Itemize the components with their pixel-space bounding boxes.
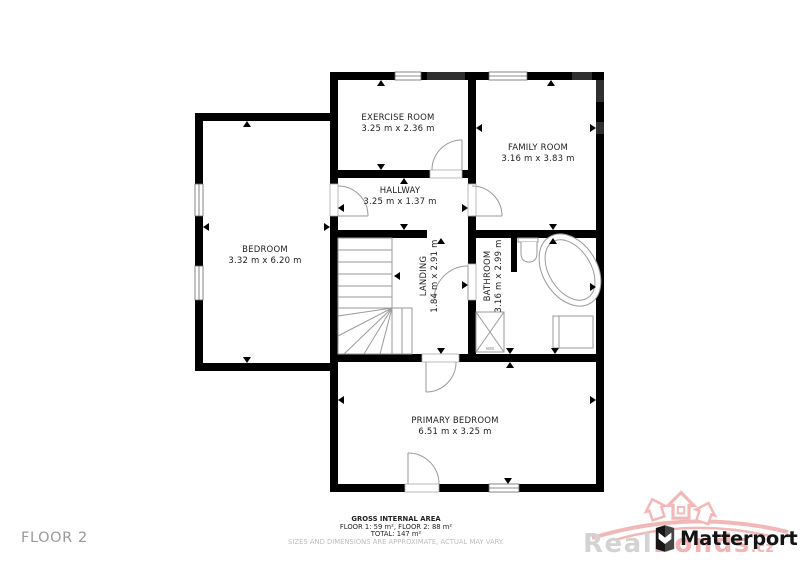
room-dims: 6.51 m x 3.25 m	[411, 427, 498, 438]
room-label-bathroom: BATHROOM 3.16 m x 2.99 m	[483, 239, 505, 312]
room-label-bedroom: BEDROOM 3.32 m x 6.20 m	[228, 245, 301, 267]
watermark-real: Real	[583, 531, 653, 557]
room-name: EXERCISE ROOM	[361, 113, 434, 124]
room-name: BEDROOM	[228, 245, 301, 256]
room-dims: 3.16 m x 2.99 m	[494, 239, 505, 312]
matterport-wordmark: Matterport	[680, 527, 797, 550]
window-top-family	[489, 72, 527, 80]
washer	[553, 316, 593, 348]
room-name: BATHROOM	[483, 239, 494, 312]
window-bedroom-lower	[195, 266, 203, 300]
room-label-landing: LANDING 1.84 m x 2.91 m	[419, 239, 441, 312]
floorplan-svg	[0, 0, 800, 566]
door-primary-bottom	[408, 453, 439, 484]
room-name: PRIMARY BEDROOM	[411, 416, 498, 427]
window-bottom-primary	[489, 484, 519, 492]
room-dims: 3.16 m x 3.83 m	[501, 154, 574, 165]
room-name: HALLWAY	[363, 186, 436, 197]
room-label-exercise: EXERCISE ROOM 3.25 m x 2.36 m	[361, 113, 434, 135]
room-name: LANDING	[419, 239, 430, 312]
room-label-hallway: HALLWAY 3.25 m x 1.37 m	[363, 186, 436, 208]
door-thresholds	[330, 170, 476, 492]
door-hallway-exercise	[432, 140, 462, 170]
room-dims: 3.25 m x 1.37 m	[363, 197, 436, 208]
floor-label: FLOOR 2	[21, 530, 88, 546]
room-label-primary: PRIMARY BEDROOM 6.51 m x 3.25 m	[411, 416, 498, 438]
toilet	[518, 238, 538, 262]
gray-wall-segments	[427, 72, 604, 134]
room-name: FAMILY ROOM	[501, 143, 574, 154]
matterport-logo: Matterport	[654, 524, 797, 553]
room-label-family: FAMILY ROOM 3.16 m x 3.83 m	[501, 143, 574, 165]
disclaimer: SIZES AND DIMENSIONS ARE APPROXIMATE, AC…	[288, 539, 504, 547]
window-top-exercise	[395, 72, 421, 80]
room-dims: 3.25 m x 2.36 m	[361, 124, 434, 135]
staircase	[338, 238, 412, 354]
door-landing-primary	[426, 362, 456, 392]
door-hallway-family	[472, 186, 502, 216]
room-dims: 3.32 m x 6.20 m	[228, 256, 301, 267]
window-bedroom-upper	[195, 184, 203, 216]
walls	[195, 72, 604, 492]
floorplan-canvas: EXERCISE ROOM 3.25 m x 2.36 m FAMILY ROO…	[0, 0, 800, 566]
shower	[476, 312, 504, 352]
area-summary: GROSS INTERNAL AREA FLOOR 1: 59 m², FLOO…	[288, 516, 504, 546]
room-dims: 1.84 m x 2.91 m	[430, 239, 441, 312]
dimension-markers	[203, 80, 596, 484]
matterport-icon	[654, 524, 676, 553]
